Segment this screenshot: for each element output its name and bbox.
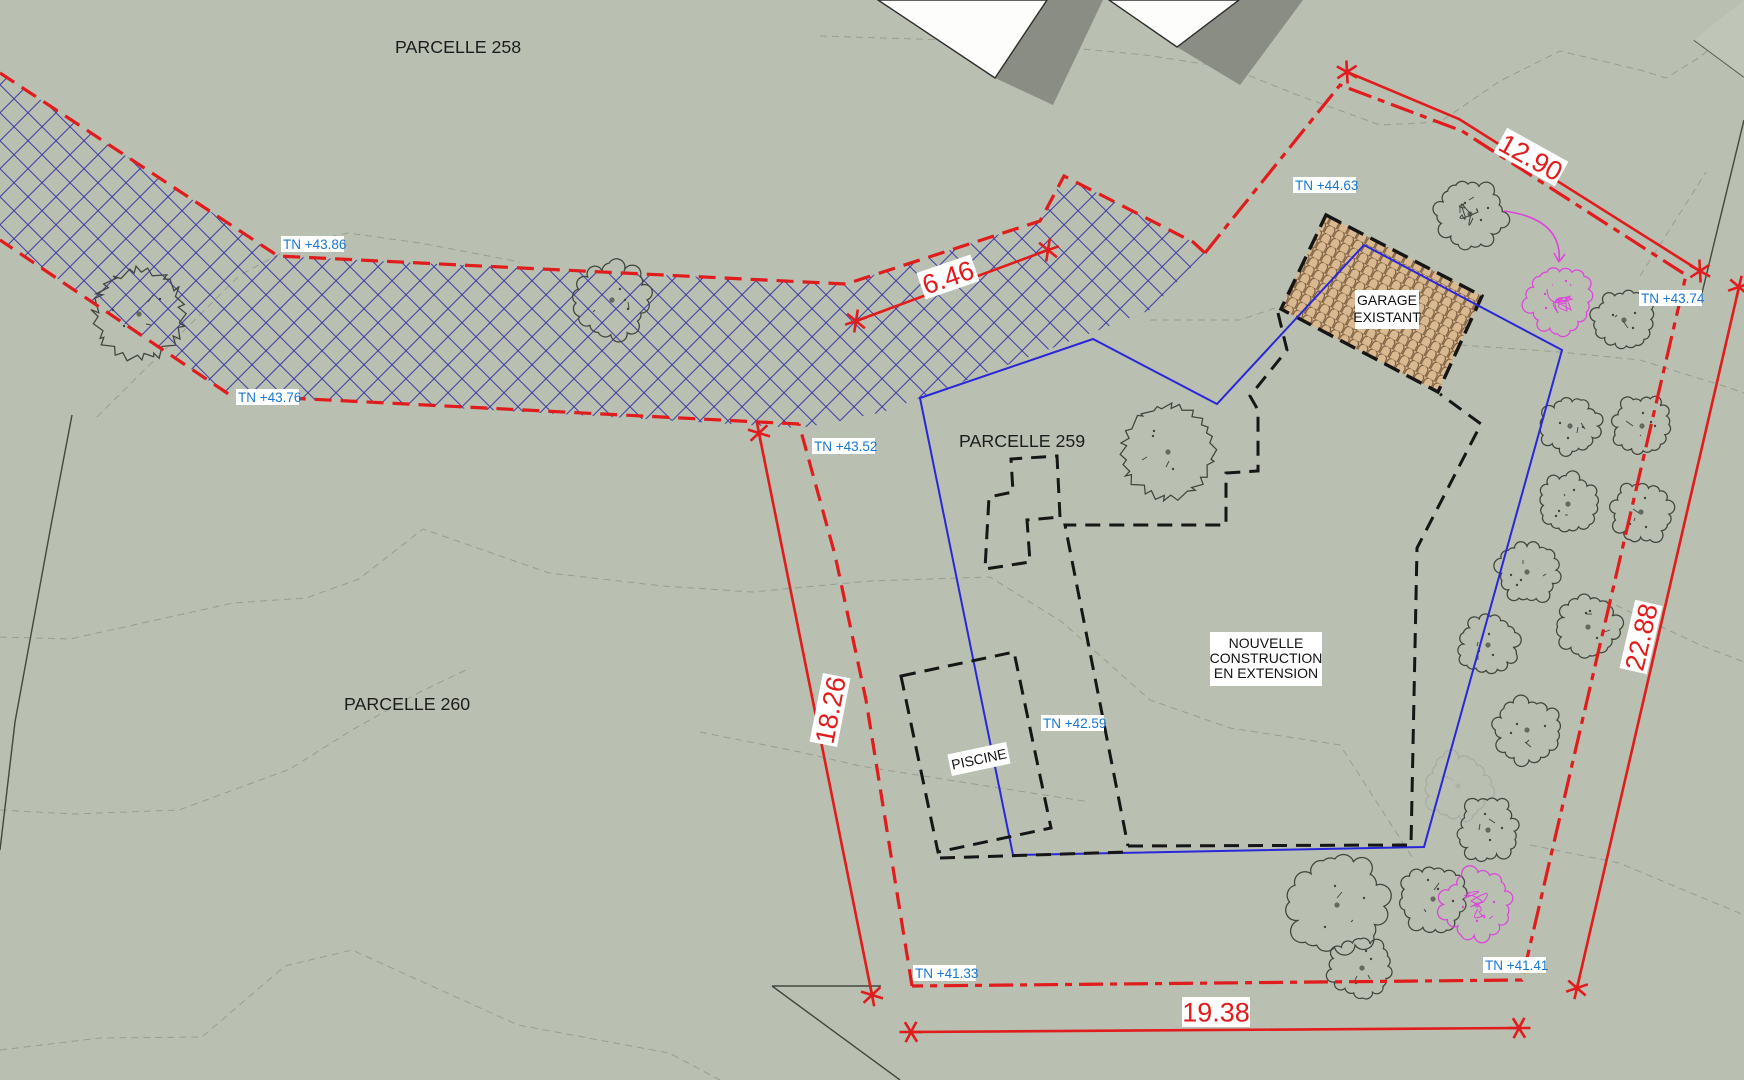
svg-text:CONSTRUCTION: CONSTRUCTION: [1210, 650, 1323, 666]
svg-text:TN +41.33: TN +41.33: [915, 966, 978, 981]
svg-text:PARCELLE 259: PARCELLE 259: [959, 431, 1085, 451]
svg-text:EN EXTENSION: EN EXTENSION: [1214, 665, 1318, 681]
svg-text:PARCELLE 258: PARCELLE 258: [395, 37, 521, 57]
svg-text:19.38: 19.38: [1182, 998, 1250, 1028]
svg-text:TN +43.76: TN +43.76: [238, 390, 301, 405]
svg-text:PARCELLE 260: PARCELLE 260: [344, 694, 470, 714]
svg-text:TN +43.74: TN +43.74: [1641, 291, 1705, 306]
svg-text:TN +41.41: TN +41.41: [1485, 958, 1548, 973]
svg-text:TN +43.86: TN +43.86: [283, 237, 346, 252]
svg-text:GARAGE: GARAGE: [1357, 292, 1417, 308]
svg-text:TN +43.52: TN +43.52: [814, 439, 877, 454]
svg-text:NOUVELLE: NOUVELLE: [1229, 635, 1304, 651]
svg-text:TN +42.59: TN +42.59: [1043, 716, 1106, 731]
svg-text:TN +44.63: TN +44.63: [1295, 178, 1358, 193]
svg-text:EXISTANT: EXISTANT: [1353, 309, 1421, 325]
